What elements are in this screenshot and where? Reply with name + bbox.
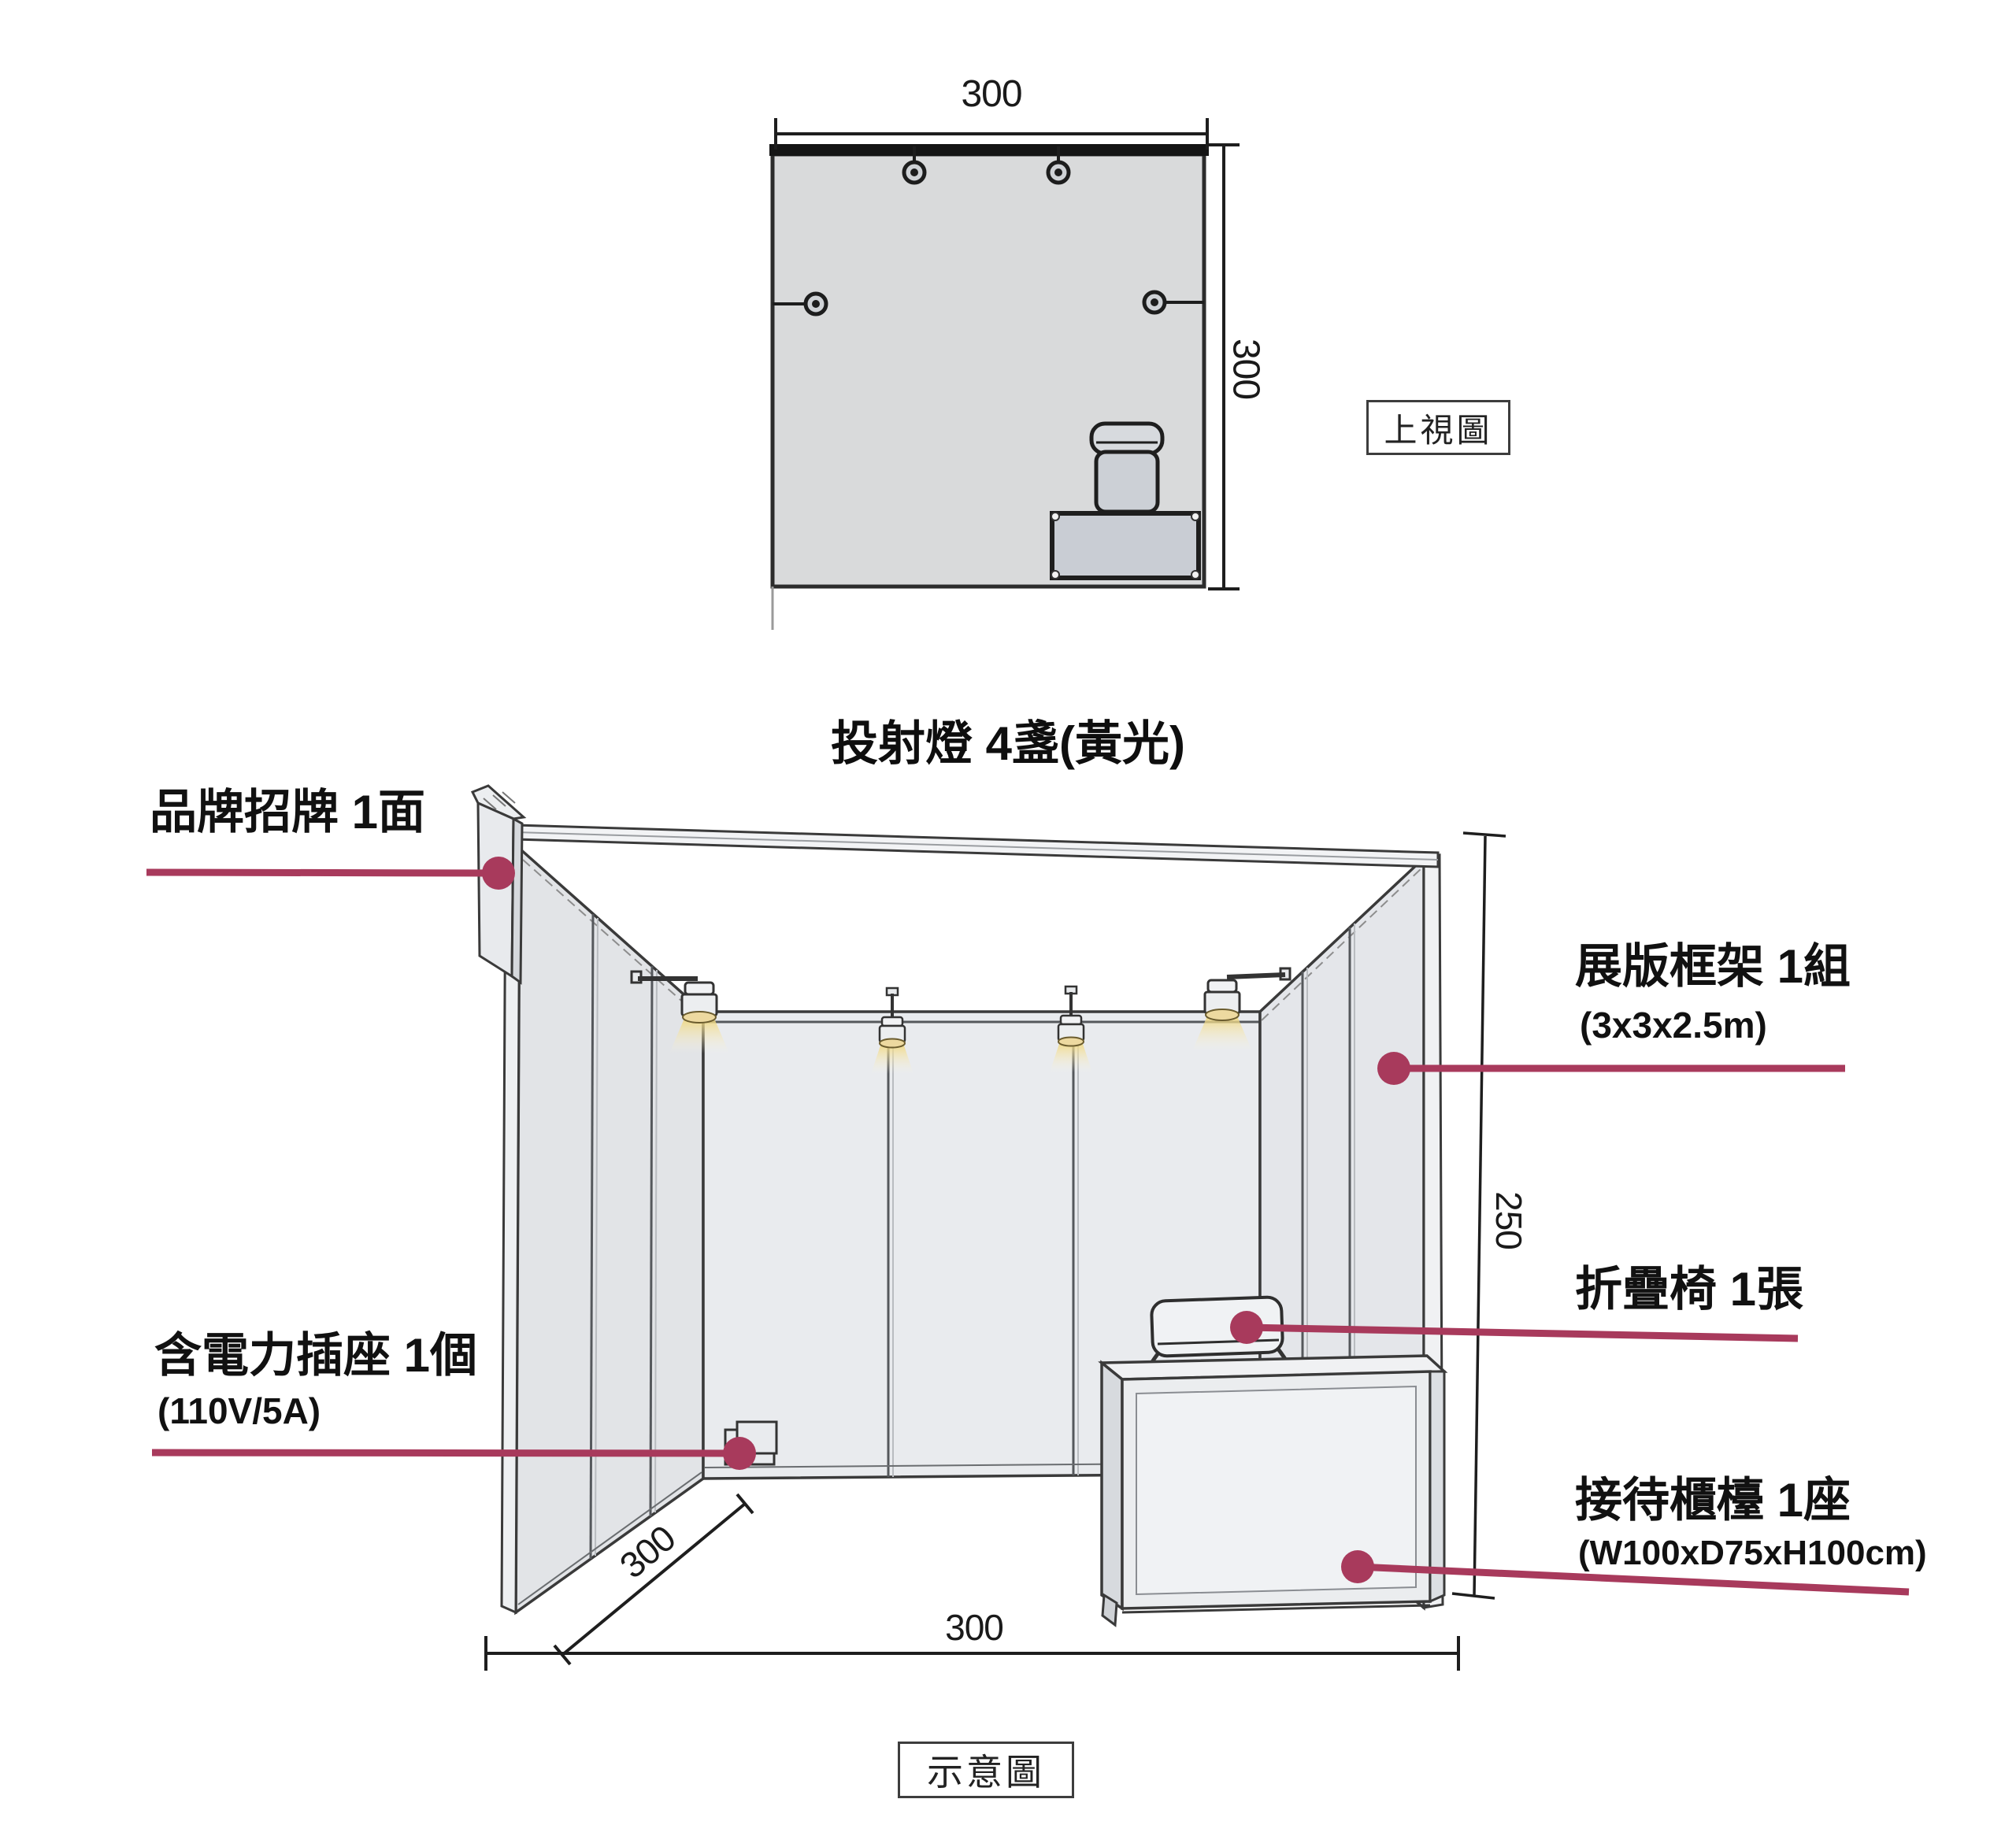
plan-chair (1091, 424, 1162, 512)
plan-counter (1051, 513, 1199, 579)
callout-frame (1377, 1052, 1845, 1085)
scene-height-value: 250 (1488, 1157, 1530, 1283)
reception-counter (1102, 1356, 1444, 1625)
label-counter: 接待櫃檯 1座 (1575, 1475, 1851, 1525)
scene-title: 投射燈 4盞(黃光) (732, 705, 1284, 774)
label-frame: 展版框架 1組 (1575, 942, 1851, 991)
label-socket: 含電力插座 1個 (154, 1331, 477, 1380)
booth-spec-diagram: 300 300 上視圖 投射燈 4盞(黃光) 品牌招牌 1面 展版框架 1組 (… (0, 0, 2016, 1836)
label-counter-sub: (W100xD75xH100cm) (1578, 1535, 1927, 1571)
plan-depth-value: 300 (1225, 306, 1268, 432)
label-socket-sub: (110V/5A) (157, 1392, 321, 1430)
label-frame-sub: (3x3x2.5m) (1580, 1006, 1767, 1044)
scene-width-value: 300 (888, 1606, 1061, 1649)
top-view-tag: 上視圖 (1366, 400, 1510, 455)
booth-header-beam (516, 825, 1438, 867)
booth-left-wall (502, 844, 703, 1612)
top-view-plan (769, 118, 1240, 630)
label-signboard: 品牌招牌 1面 (150, 787, 425, 837)
plan-back-wall-bar (769, 144, 1209, 156)
plan-width-value: 300 (905, 72, 1078, 116)
label-chair: 折疊椅 1張 (1575, 1264, 1803, 1314)
callout-signboard (146, 857, 515, 890)
scene-tag: 示意圖 (898, 1742, 1074, 1798)
